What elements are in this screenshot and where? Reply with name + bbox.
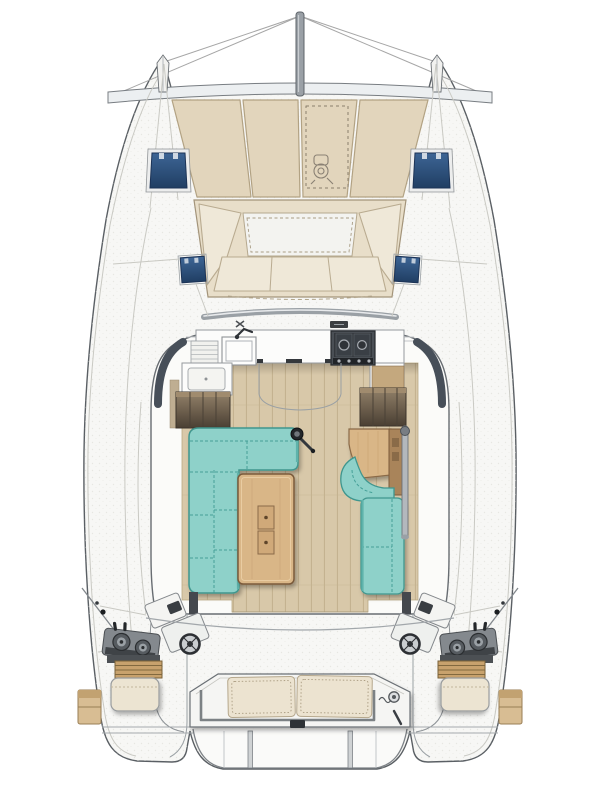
bow-pole bbox=[296, 12, 304, 96]
burner bbox=[358, 341, 367, 350]
swim-platform bbox=[193, 729, 407, 768]
bench-cushion bbox=[228, 676, 296, 717]
quarter-locker bbox=[78, 690, 101, 724]
saloon-table bbox=[238, 474, 294, 584]
steering-wheel bbox=[181, 635, 200, 654]
helm-seat bbox=[111, 678, 159, 711]
throttle-lever bbox=[123, 622, 127, 631]
forward-cockpit-floor bbox=[243, 213, 357, 256]
burner bbox=[339, 340, 349, 350]
forward-cockpit-sofa bbox=[194, 200, 406, 300]
lounge-bench-cushions bbox=[214, 257, 386, 291]
bench-latch bbox=[290, 720, 305, 728]
side-deck-hatch bbox=[178, 254, 208, 285]
sunpad-panel bbox=[243, 100, 300, 197]
starboard-settee bbox=[361, 498, 404, 594]
transom-bench bbox=[190, 674, 410, 728]
door-frame-post-starboard bbox=[402, 592, 411, 614]
davit-post bbox=[348, 731, 353, 768]
support-post bbox=[401, 426, 410, 540]
bench-cushion bbox=[297, 675, 373, 717]
port-top-steps bbox=[191, 341, 218, 364]
davit-post bbox=[248, 731, 253, 768]
teak-footrest bbox=[115, 661, 162, 678]
deck-plan-figure: Catamaran sailboat deck and saloon floor… bbox=[0, 0, 600, 800]
galley-prep-sink bbox=[182, 363, 232, 395]
bow-hatch bbox=[146, 149, 191, 192]
sunpad-panel bbox=[301, 100, 357, 197]
davits bbox=[193, 729, 407, 768]
door-frame-post-port bbox=[189, 592, 198, 614]
deck-plan-canvas: Catamaran sailboat deck and saloon floor… bbox=[0, 0, 600, 800]
stove bbox=[331, 331, 375, 365]
